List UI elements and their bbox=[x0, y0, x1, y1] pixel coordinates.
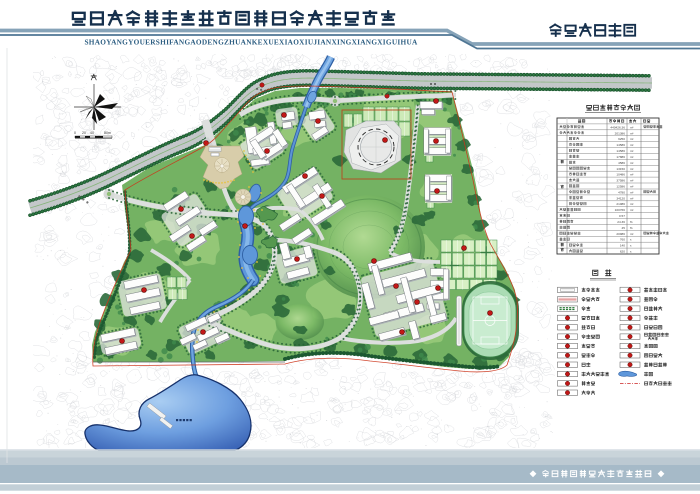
svg-text:440426.36: 440426.36 bbox=[610, 125, 625, 129]
svg-text:34120: 34120 bbox=[616, 196, 625, 200]
svg-text:80m: 80m bbox=[104, 131, 111, 135]
svg-text:40: 40 bbox=[90, 131, 94, 135]
svg-text:45: 45 bbox=[622, 226, 626, 230]
svg-text:m²: m² bbox=[630, 232, 633, 236]
svg-text:9250: 9250 bbox=[618, 137, 625, 141]
svg-text:m²: m² bbox=[630, 131, 633, 135]
svg-text:0: 0 bbox=[74, 131, 76, 135]
svg-text:m²: m² bbox=[630, 190, 633, 194]
svg-text:m²: m² bbox=[630, 143, 633, 147]
svg-text:m²: m² bbox=[630, 161, 633, 165]
svg-text:201386: 201386 bbox=[615, 131, 626, 135]
svg-text:SHAOYANGYOUERSHIFANGAODENGZHUA: SHAOYANGYOUERSHIFANGAODENGZHUANKEXUEXIAO… bbox=[84, 38, 418, 47]
svg-text:14586: 14586 bbox=[616, 149, 625, 153]
svg-text:m²: m² bbox=[630, 137, 633, 141]
svg-text:m²: m² bbox=[630, 167, 633, 171]
svg-text:m²: m² bbox=[630, 202, 633, 206]
svg-text:m²: m² bbox=[630, 125, 633, 129]
svg-text:4586: 4586 bbox=[618, 161, 625, 165]
svg-text:24.36: 24.36 bbox=[617, 220, 625, 224]
svg-text:m²: m² bbox=[630, 185, 633, 189]
svg-text:13150: 13150 bbox=[616, 167, 625, 171]
svg-text:17886: 17886 bbox=[616, 155, 625, 159]
svg-text:m²: m² bbox=[630, 208, 633, 212]
svg-text:100766: 100766 bbox=[615, 208, 626, 212]
svg-text:%: % bbox=[630, 220, 633, 224]
svg-text:m²: m² bbox=[630, 149, 633, 153]
svg-text:21086: 21086 bbox=[616, 202, 625, 206]
svg-text:20986: 20986 bbox=[616, 232, 625, 236]
svg-text:14586: 14586 bbox=[616, 143, 625, 147]
svg-text:0.57: 0.57 bbox=[619, 214, 625, 218]
svg-text:620: 620 bbox=[620, 250, 625, 254]
svg-text:140: 140 bbox=[620, 244, 625, 248]
svg-text:10486: 10486 bbox=[616, 173, 625, 177]
svg-text:m²: m² bbox=[630, 179, 633, 183]
svg-text:m²: m² bbox=[630, 196, 633, 200]
svg-text:760: 760 bbox=[620, 238, 625, 242]
svg-text:m²: m² bbox=[630, 173, 633, 177]
svg-text:%: % bbox=[630, 226, 633, 230]
svg-text:37586: 37586 bbox=[616, 179, 625, 183]
svg-text:m²: m² bbox=[630, 155, 633, 159]
svg-text:20: 20 bbox=[82, 131, 86, 135]
svg-text:12586: 12586 bbox=[616, 185, 625, 189]
svg-text:4780: 4780 bbox=[618, 190, 625, 194]
